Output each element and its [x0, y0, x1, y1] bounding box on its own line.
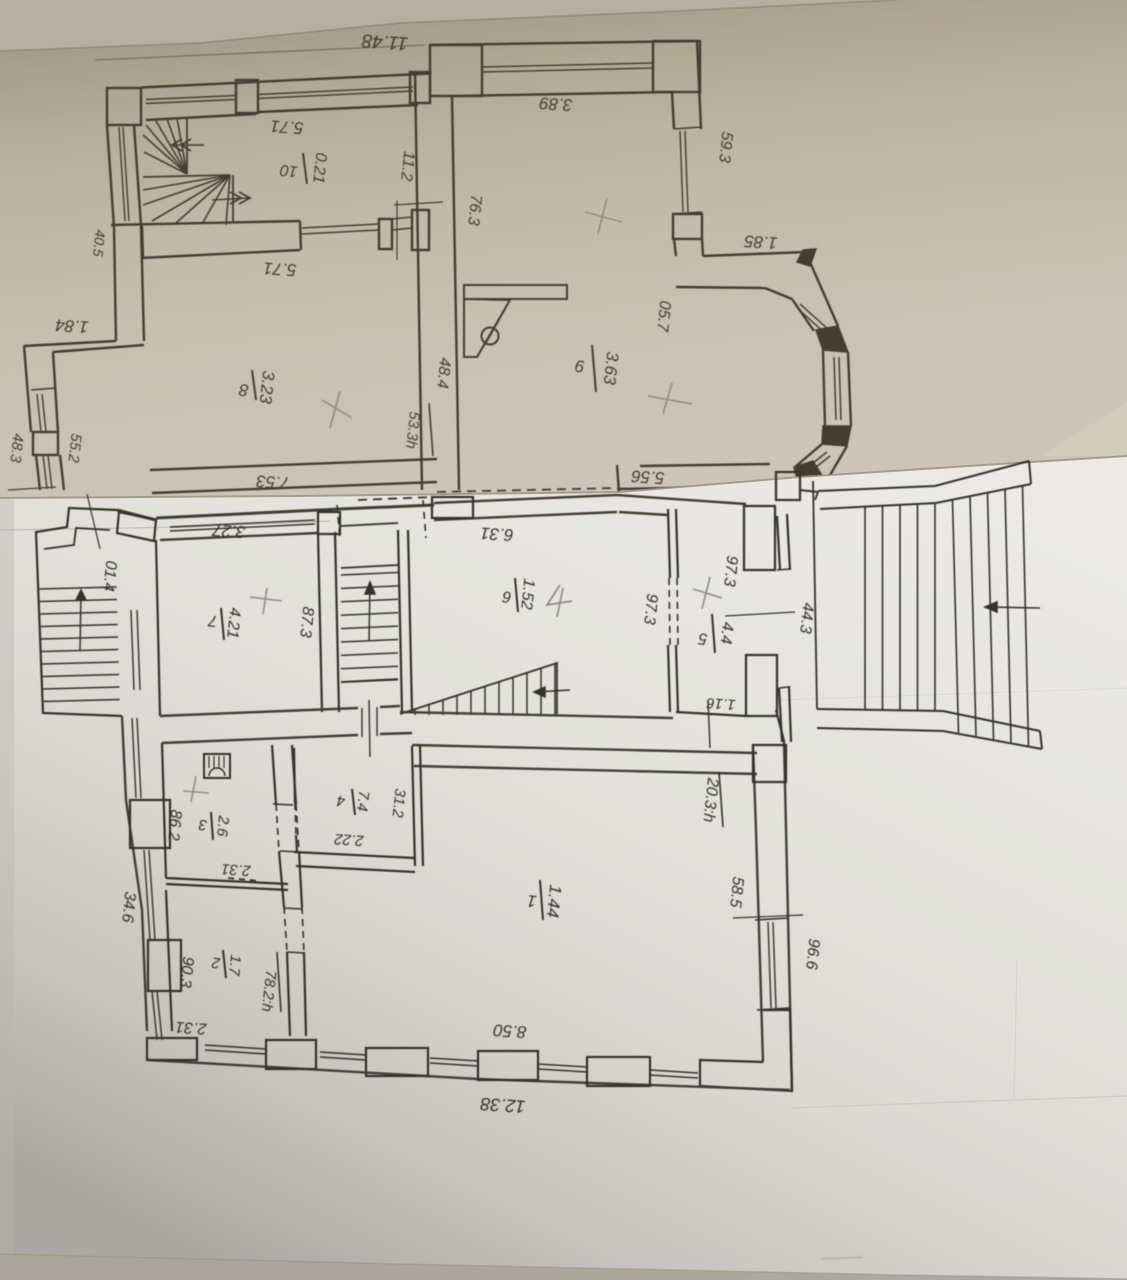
svg-text:5.56: 5.56	[630, 466, 665, 487]
svg-text:4: 4	[336, 792, 346, 810]
svg-text:5.71: 5.71	[270, 116, 304, 137]
svg-text:48.3: 48.3	[6, 433, 26, 464]
svg-text:1: 1	[526, 891, 537, 911]
svg-text:97.3: 97.3	[720, 555, 740, 588]
svg-text:11.2: 11.2	[397, 150, 417, 182]
svg-text:7.4: 7.4	[353, 790, 372, 813]
svg-text:2.22: 2.22	[333, 830, 365, 849]
svg-text:3.63: 3.63	[600, 351, 622, 386]
svg-text:1.52: 1.52	[517, 578, 537, 611]
svg-text:87.3: 87.3	[296, 606, 316, 639]
svg-text:8.50: 8.50	[492, 1020, 527, 1041]
svg-text:58.5: 58.5	[726, 876, 746, 909]
svg-text:11.48: 11.48	[361, 29, 409, 53]
svg-text:6.31: 6.31	[480, 523, 514, 544]
svg-text:1.84: 1.84	[55, 315, 89, 336]
svg-text:90.3: 90.3	[176, 956, 196, 989]
svg-text:48.4: 48.4	[433, 357, 453, 390]
svg-text:12.38: 12.38	[480, 1094, 526, 1117]
svg-text:5.71: 5.71	[263, 258, 297, 279]
svg-text:5: 5	[698, 629, 709, 647]
svg-text:76.3: 76.3	[464, 194, 484, 227]
svg-text:3.27: 3.27	[211, 520, 246, 541]
svg-text:2.31: 2.31	[175, 1018, 208, 1037]
svg-text:2.31: 2.31	[221, 860, 252, 879]
svg-text:0.21: 0.21	[309, 152, 329, 185]
svg-text:10: 10	[279, 161, 299, 180]
svg-text:55.2: 55.2	[64, 433, 84, 464]
svg-text:01.4: 01.4	[99, 560, 119, 593]
svg-text:3.89: 3.89	[538, 93, 573, 114]
svg-text:31.2: 31.2	[388, 788, 408, 819]
svg-text:4.21: 4.21	[223, 607, 243, 640]
svg-text:3.23: 3.23	[256, 370, 278, 405]
svg-text:97.3: 97.3	[640, 593, 660, 626]
svg-text:96.6: 96.6	[802, 938, 822, 971]
svg-text:1.44: 1.44	[543, 884, 565, 919]
svg-text:6: 6	[502, 587, 513, 605]
svg-text:2.6: 2.6	[213, 814, 232, 838]
svg-text:44.3: 44.3	[796, 602, 816, 635]
svg-text:59.3: 59.3	[715, 131, 735, 164]
svg-text:4.4: 4.4	[717, 621, 736, 645]
svg-text:1.85: 1.85	[743, 231, 778, 252]
svg-text:05.7: 05.7	[653, 300, 673, 334]
svg-text:1.7: 1.7	[225, 954, 244, 977]
svg-text:40.5: 40.5	[90, 229, 109, 258]
svg-text:34.6: 34.6	[118, 891, 138, 924]
svg-text:7.53: 7.53	[255, 471, 290, 492]
svg-text:1.16: 1.16	[705, 694, 736, 713]
svg-text:86.2: 86.2	[164, 809, 184, 842]
